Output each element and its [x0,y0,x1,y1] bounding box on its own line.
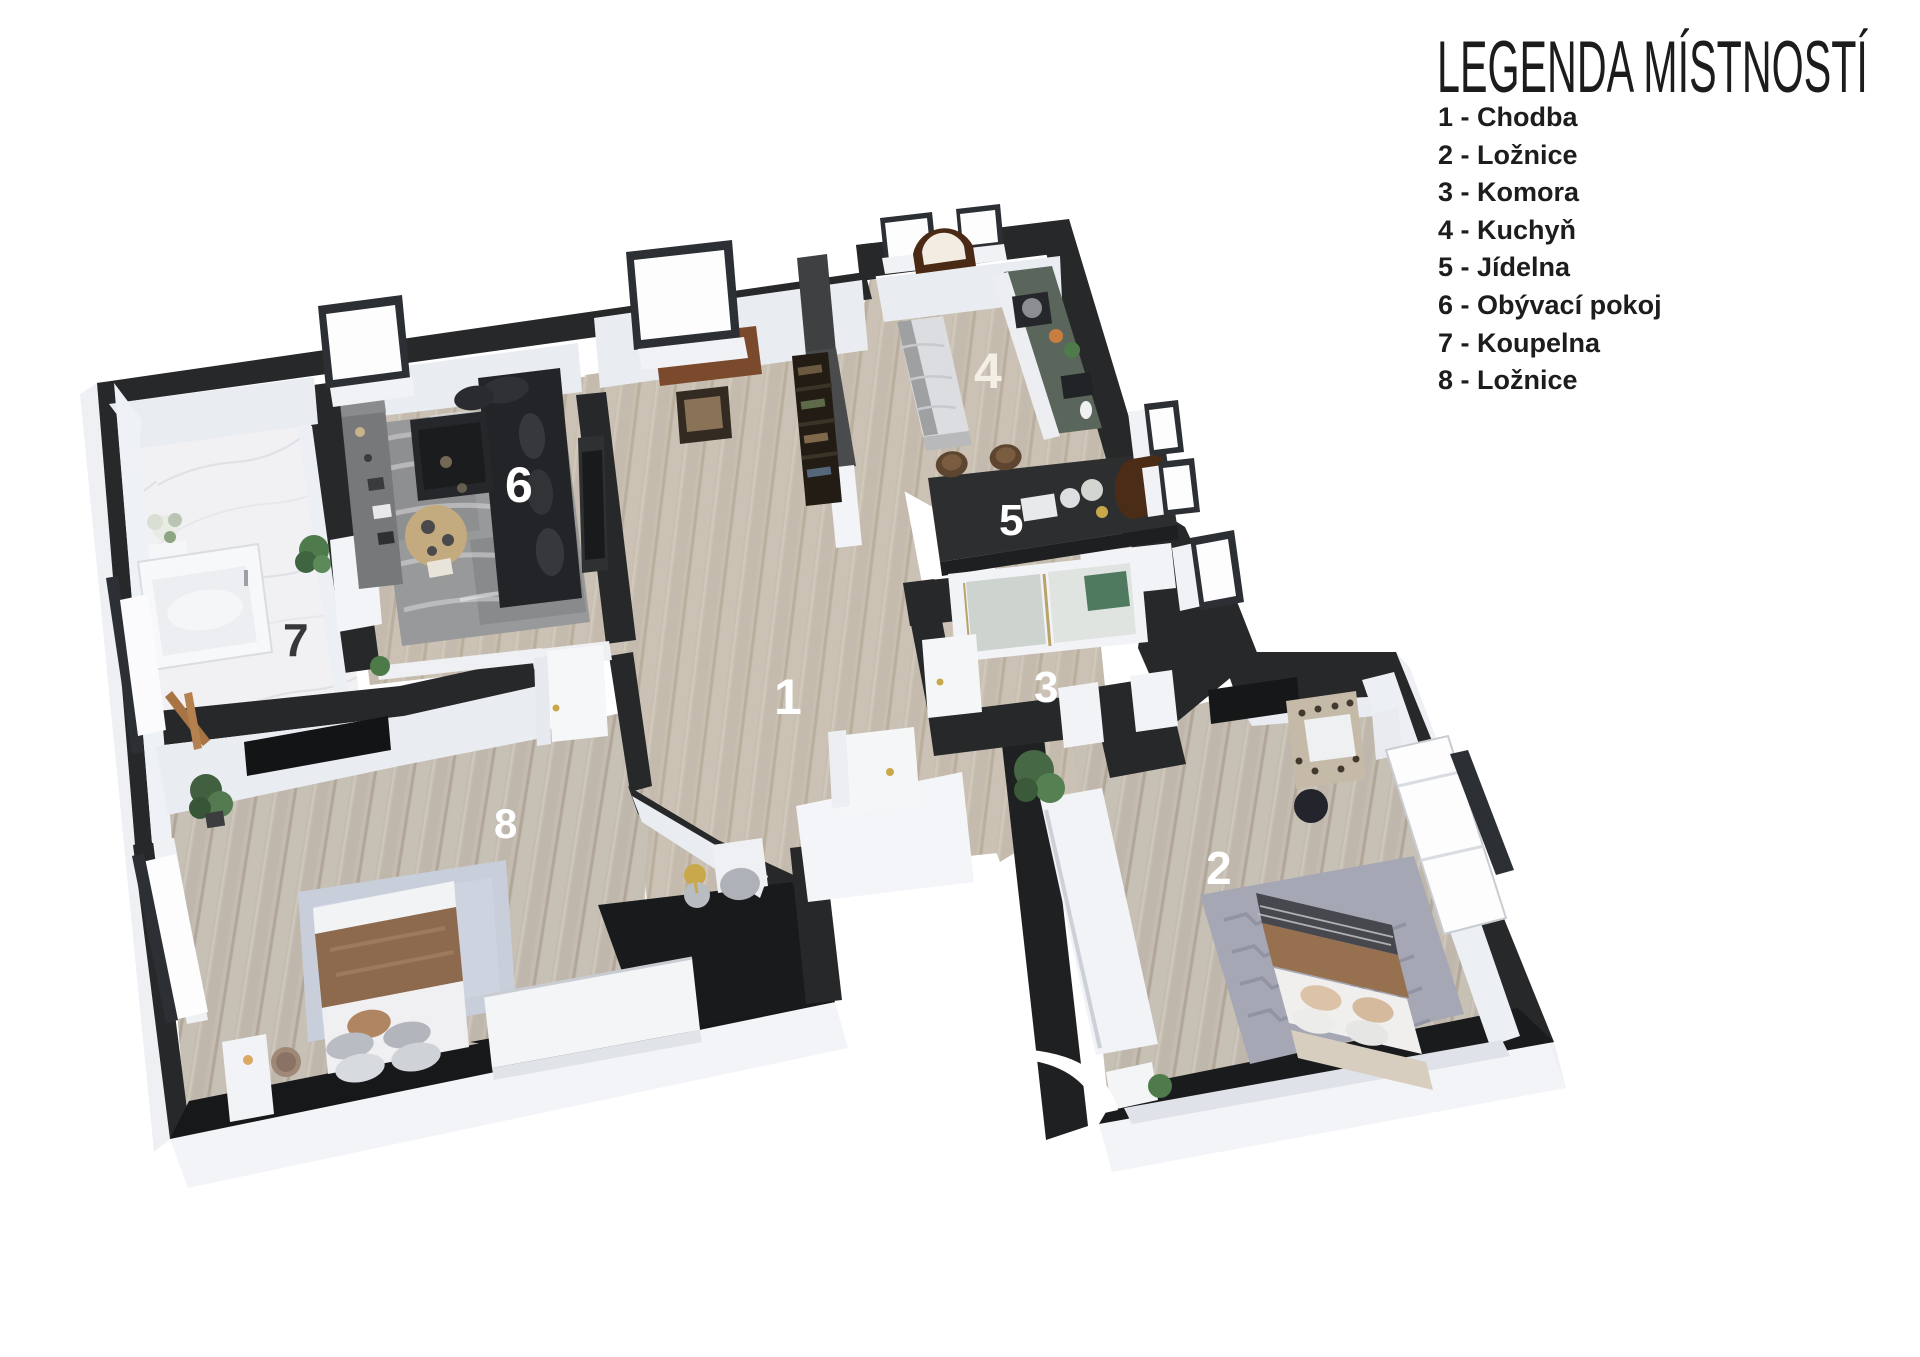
svg-text:5: 5 [999,496,1023,545]
svg-text:1: 1 [774,669,802,725]
svg-text:6: 6 [505,457,533,513]
svg-text:8: 8 [494,800,517,847]
svg-text:4: 4 [974,343,1002,399]
svg-text:2: 2 [1206,842,1232,894]
svg-text:7: 7 [283,614,309,666]
svg-text:3: 3 [1034,663,1058,712]
